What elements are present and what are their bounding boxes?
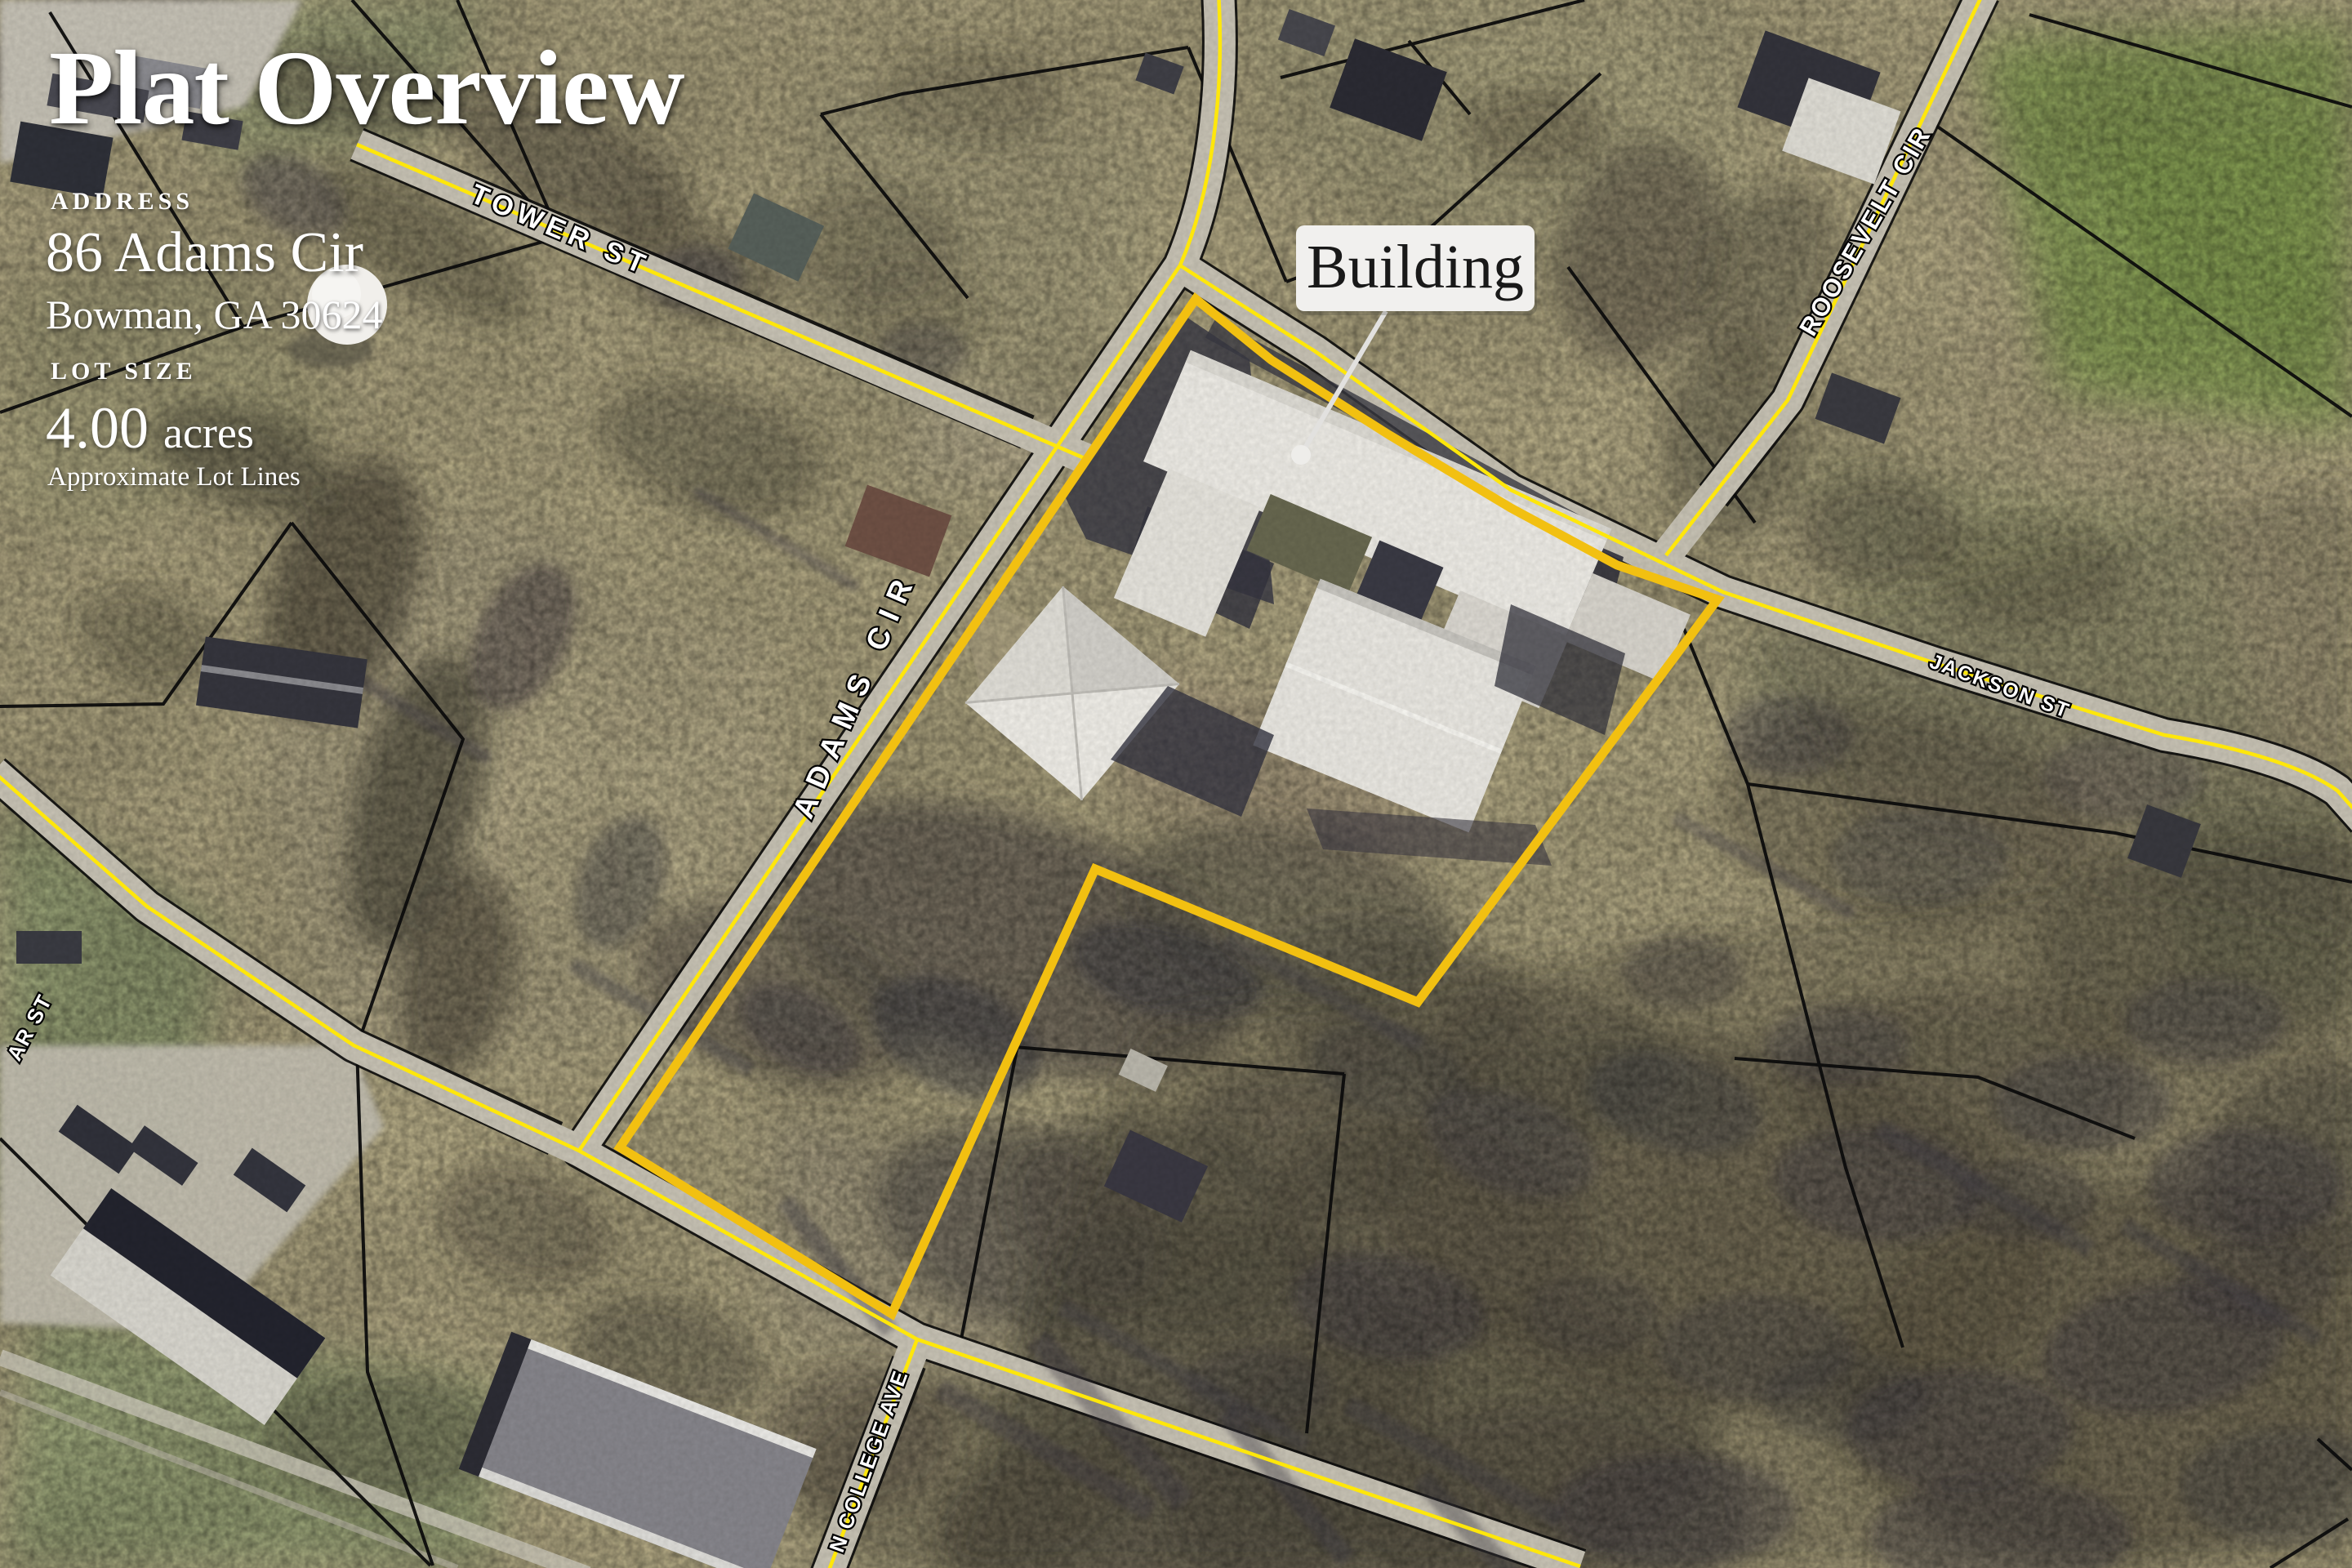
- svg-text:Building: Building: [1307, 233, 1524, 301]
